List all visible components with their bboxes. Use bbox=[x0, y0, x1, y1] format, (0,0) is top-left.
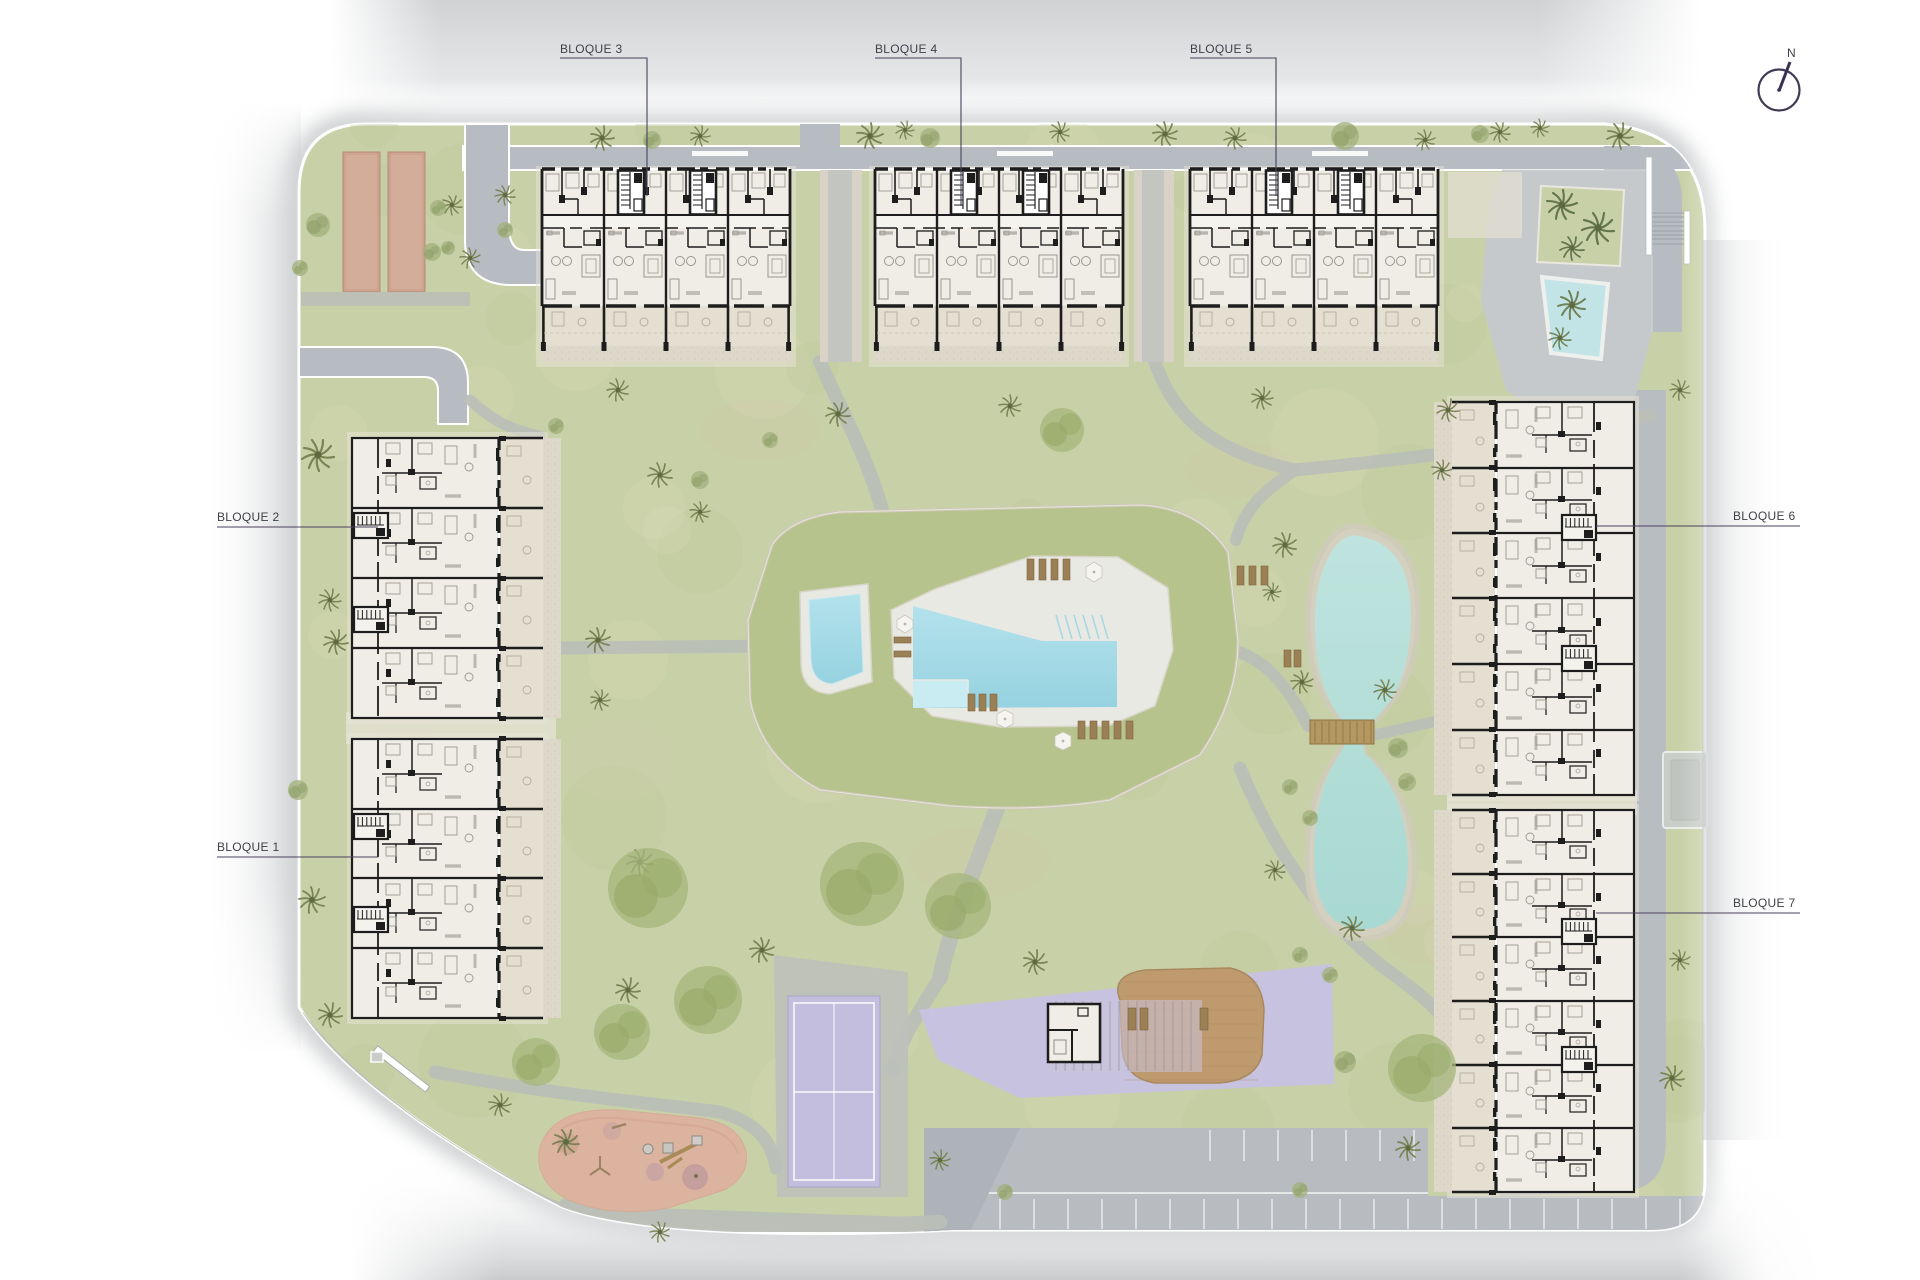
svg-text:BLOQUE 6: BLOQUE 6 bbox=[1733, 509, 1795, 523]
svg-text:BLOQUE 4: BLOQUE 4 bbox=[875, 42, 937, 56]
svg-text:N: N bbox=[1787, 46, 1796, 60]
svg-text:BLOQUE 7: BLOQUE 7 bbox=[1733, 896, 1795, 910]
svg-text:BLOQUE 1: BLOQUE 1 bbox=[217, 840, 279, 854]
svg-text:BLOQUE 2: BLOQUE 2 bbox=[217, 510, 279, 524]
svg-text:BLOQUE 3: BLOQUE 3 bbox=[560, 42, 622, 56]
svg-text:BLOQUE 5: BLOQUE 5 bbox=[1190, 42, 1252, 56]
